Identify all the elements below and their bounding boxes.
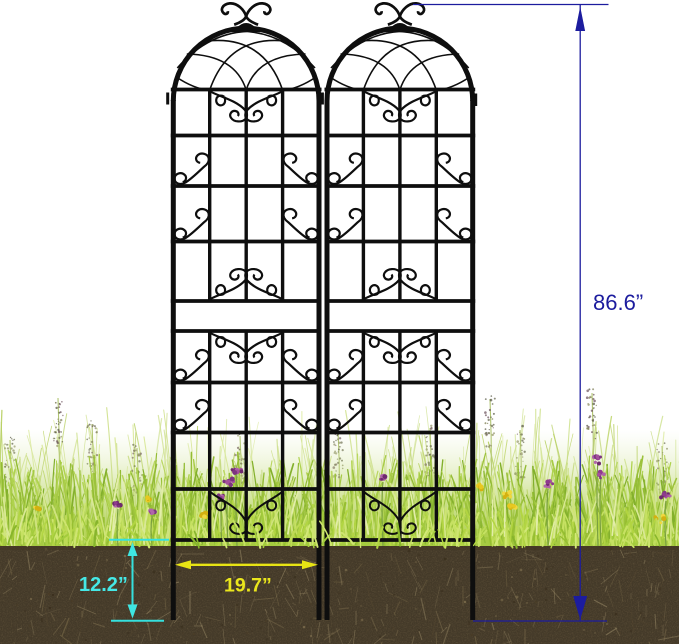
svg-text:12.2”: 12.2” (79, 574, 128, 596)
svg-text:86.6”: 86.6” (593, 290, 643, 315)
svg-text:19.7”: 19.7” (224, 575, 272, 597)
